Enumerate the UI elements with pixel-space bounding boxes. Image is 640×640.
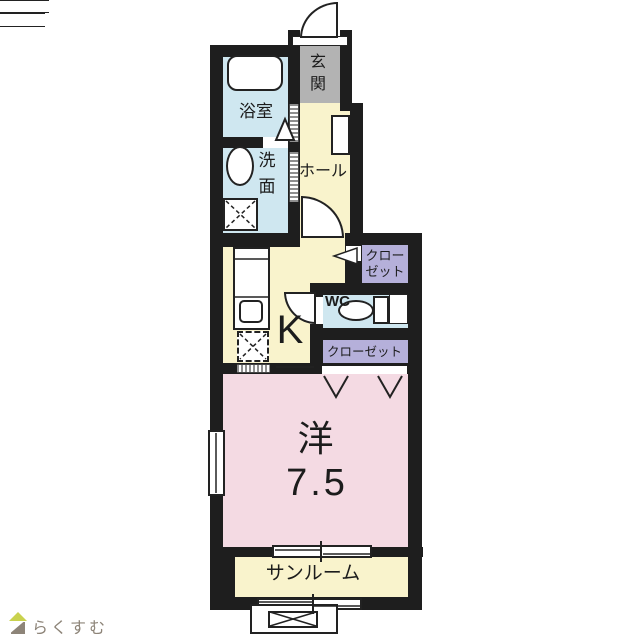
refrigerator-space bbox=[237, 331, 269, 362]
logo-house-roof-icon bbox=[9, 612, 27, 621]
western-room-label: 洋 bbox=[293, 421, 338, 457]
bathroom-label: 浴室 bbox=[230, 101, 282, 123]
wall-outer-left bbox=[210, 45, 223, 610]
room-sunroom-sliding-window bbox=[272, 545, 372, 558]
hall-kitchen-threshold bbox=[0, 0, 49, 13]
kitchen-room-sliding-door bbox=[0, 13, 45, 27]
sliding-door-hatch-hall-upper bbox=[289, 104, 299, 142]
western-room-window bbox=[208, 430, 225, 496]
washroom-label: 洗面 bbox=[256, 148, 278, 199]
logo-text: らくすむ bbox=[32, 614, 108, 638]
logo-house-body-icon bbox=[11, 622, 25, 634]
room-western bbox=[223, 374, 408, 547]
kitchen-label: K bbox=[266, 310, 314, 350]
sliding-door-hatch-kitchen bbox=[237, 364, 270, 373]
shoe-cabinet bbox=[331, 115, 350, 155]
wc-window bbox=[389, 294, 408, 324]
wc-label: WC bbox=[325, 293, 345, 310]
bathtub bbox=[227, 55, 283, 91]
floor-plan-canvas: 玄関 浴室 洗面 ホール K クローゼット WC クローゼット 洋 7.5 サン… bbox=[0, 0, 640, 640]
entrance-door-swing bbox=[300, 2, 338, 38]
wall-hall-right bbox=[350, 103, 363, 245]
closet-lower-label: クローゼット bbox=[322, 344, 407, 360]
wall-washroom-bottom bbox=[210, 233, 298, 247]
toilet-tank bbox=[373, 296, 389, 324]
closet-upper-door-opening bbox=[346, 246, 361, 261]
washing-machine-pan bbox=[223, 198, 258, 231]
hall-label: ホール bbox=[296, 162, 350, 183]
western-room-size: 7.5 bbox=[272, 464, 362, 502]
rakusumu-logo: らくすむ bbox=[8, 611, 118, 637]
bathroom-door-opening bbox=[263, 137, 288, 148]
kitchen-sink bbox=[239, 300, 263, 323]
exterior-step-inner bbox=[268, 611, 318, 628]
logo-house-body-highlight bbox=[11, 622, 25, 634]
closet-lower-door-opening bbox=[322, 366, 407, 374]
sunroom-label: サンルーム bbox=[258, 562, 368, 587]
genkan-label: 玄関 bbox=[306, 52, 330, 95]
wall-wc-bottom bbox=[322, 328, 422, 340]
closet-upper-label: クローゼット bbox=[362, 248, 408, 281]
washbasin bbox=[226, 146, 254, 186]
